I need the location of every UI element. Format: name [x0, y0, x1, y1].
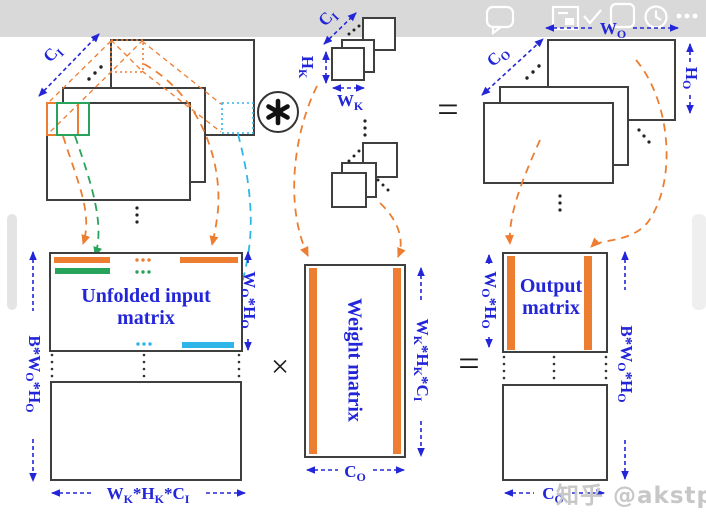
output-title-line1: Output: [520, 275, 583, 297]
screenshot-root: CI CI HK WK: [0, 0, 706, 525]
weight-matrix: Weight matrix WK*HK*CI CO: [305, 265, 432, 484]
ci-label: CI: [39, 40, 67, 68]
multiply-sign: ×: [271, 348, 289, 384]
weight-col-strip-right: [393, 268, 401, 454]
kernel-front: [332, 48, 364, 80]
right-scroll-handle[interactable]: [692, 214, 706, 310]
output-col-strip-left: [507, 256, 515, 350]
row-strip-cyan: [182, 342, 234, 348]
green-ellipsis: [135, 270, 150, 273]
dot: [135, 220, 138, 223]
dot: [677, 14, 682, 19]
dot: [693, 14, 698, 19]
row-gap-ellipsis: [503, 356, 608, 380]
input-stack-ellipsis: [87, 65, 102, 80]
ci-arrow: [39, 34, 99, 96]
output-woho-label: WO*HO: [479, 271, 500, 328]
input-ci-dimension: CI: [39, 34, 99, 96]
kernel-front: [332, 173, 366, 207]
dot: [99, 65, 102, 68]
output-bottom-block: [503, 385, 607, 480]
left-scroll-handle[interactable]: [7, 214, 17, 310]
orange-ellipsis: [135, 258, 150, 261]
output-rows-label: B*WO*HO: [615, 325, 636, 402]
weight-col-strip-left: [309, 268, 317, 454]
output-title-line2: matrix: [522, 297, 580, 319]
equals-top: =: [437, 89, 458, 131]
output-feature-maps: [484, 40, 675, 183]
row-strip-orange-2: [180, 257, 238, 263]
weight-rows-label: WK*HK*CI: [411, 319, 432, 402]
kernel-stacks-vellipsis: [363, 119, 366, 136]
unfolded-cols-label: WK*HK*CI: [107, 484, 190, 506]
weight-title: Weight matrix: [343, 298, 365, 422]
dot: [135, 206, 138, 209]
unfolded-woho-label: WO*HO: [238, 271, 259, 328]
dot: [87, 77, 90, 80]
output-ho-dimension: HO: [680, 44, 701, 113]
row-gap-ellipsis: [51, 354, 241, 378]
cyan-ellipsis: [136, 342, 151, 345]
kernel-wk-label: WK: [337, 91, 364, 113]
weight-cols-label: CO: [344, 462, 366, 484]
ho-label: HO: [680, 67, 701, 90]
float-window-inner: [565, 18, 574, 25]
output-col-strip-right: [584, 256, 592, 350]
output-map-front: [484, 103, 613, 183]
equals-bottom: =: [458, 343, 479, 385]
input-stack-vellipsis: [135, 206, 138, 223]
dot: [685, 14, 690, 19]
dot: [93, 71, 96, 74]
kernel-hk-label: HK: [296, 56, 317, 79]
diagram-canvas: CI CI HK WK: [0, 0, 706, 525]
unfolded-title-line2: matrix: [117, 307, 175, 329]
unfolded-bottom-block: [51, 382, 241, 480]
watermark: 知乎 @akstpo: [556, 482, 706, 509]
dot: [135, 213, 138, 216]
more-icon[interactable]: [677, 14, 698, 19]
kernel-stack-2: [332, 143, 397, 207]
unfolded-title-line1: Unfolded input: [81, 285, 211, 307]
convolution-operator: [258, 92, 298, 132]
row-strip-green: [55, 268, 110, 274]
unfolded-input-matrix: Unfolded input matrix B*WO*HO WO*HO WK*H…: [23, 252, 259, 506]
unfolded-rows-label: B*WO*HO: [23, 335, 44, 412]
row-strip-orange-1: [54, 257, 110, 263]
weight-curve-right: [380, 203, 401, 257]
output-matrix: Output matrix WO*HO B*WO*HO CO: [479, 252, 636, 506]
co-label: CO: [483, 42, 514, 73]
